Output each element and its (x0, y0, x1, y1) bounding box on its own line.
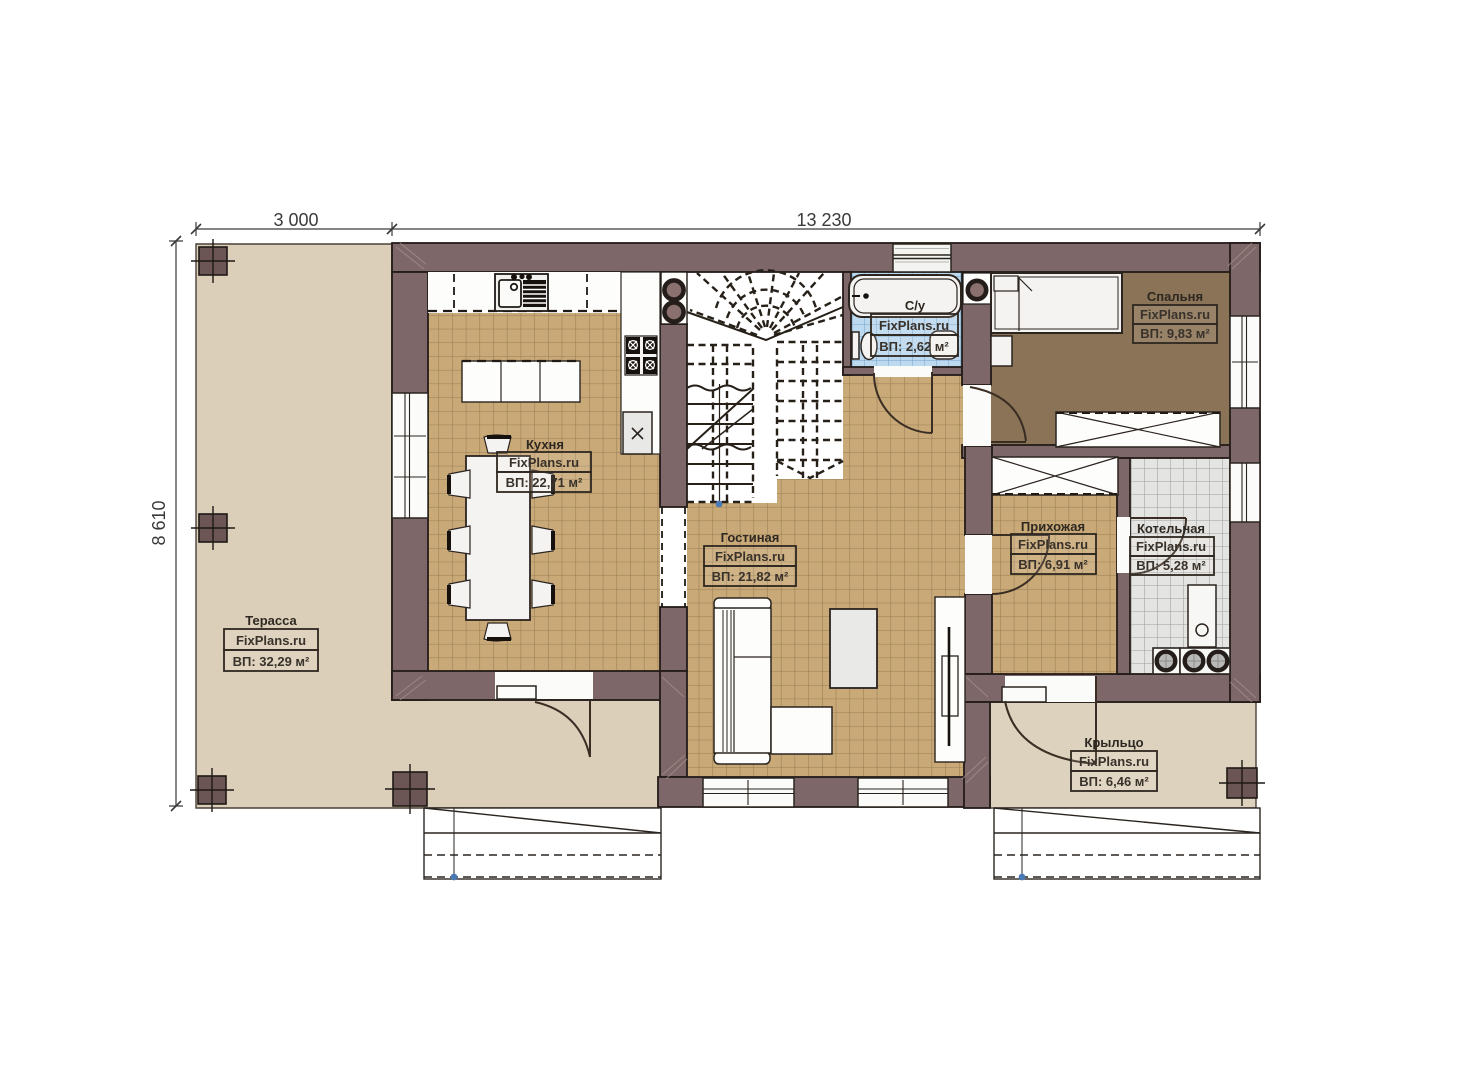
svg-text:ВП: 6,46 м²: ВП: 6,46 м² (1079, 774, 1149, 789)
svg-text:ВП: 21,82 м²: ВП: 21,82 м² (712, 569, 789, 584)
svg-text:8 610: 8 610 (149, 500, 169, 545)
svg-text:ВП: 5,28 м²: ВП: 5,28 м² (1136, 558, 1206, 573)
svg-text:FixPlans.ru: FixPlans.ru (509, 455, 579, 470)
svg-text:Терасса: Терасса (245, 613, 297, 628)
svg-text:FixPlans.ru: FixPlans.ru (715, 549, 785, 564)
svg-text:Спальня: Спальня (1147, 289, 1203, 304)
svg-text:Крыльцо: Крыльцо (1084, 735, 1143, 750)
svg-text:FixPlans.ru: FixPlans.ru (1140, 307, 1210, 322)
svg-text:Кухня: Кухня (526, 437, 564, 452)
svg-text:FixPlans.ru: FixPlans.ru (1018, 537, 1088, 552)
svg-text:ВП: 32,29 м²: ВП: 32,29 м² (233, 654, 310, 669)
svg-text:ВП: 22,71 м²: ВП: 22,71 м² (506, 475, 583, 490)
svg-text:FixPlans.ru: FixPlans.ru (236, 633, 306, 648)
svg-text:С/у: С/у (905, 298, 926, 313)
svg-text:FixPlans.ru: FixPlans.ru (879, 318, 949, 333)
svg-text:13 230: 13 230 (796, 210, 851, 230)
svg-text:Гостиная: Гостиная (721, 530, 780, 545)
svg-text:FixPlans.ru: FixPlans.ru (1079, 754, 1149, 769)
svg-text:ВП: 6,91 м²: ВП: 6,91 м² (1018, 557, 1088, 572)
svg-text:Котельная: Котельная (1137, 521, 1205, 536)
svg-text:Прихожая: Прихожая (1021, 519, 1085, 534)
svg-text:ВП: 9,83 м²: ВП: 9,83 м² (1140, 326, 1210, 341)
svg-text:FixPlans.ru: FixPlans.ru (1136, 539, 1206, 554)
svg-text:ВП: 2,62 м²: ВП: 2,62 м² (879, 339, 949, 354)
svg-text:3 000: 3 000 (273, 210, 318, 230)
